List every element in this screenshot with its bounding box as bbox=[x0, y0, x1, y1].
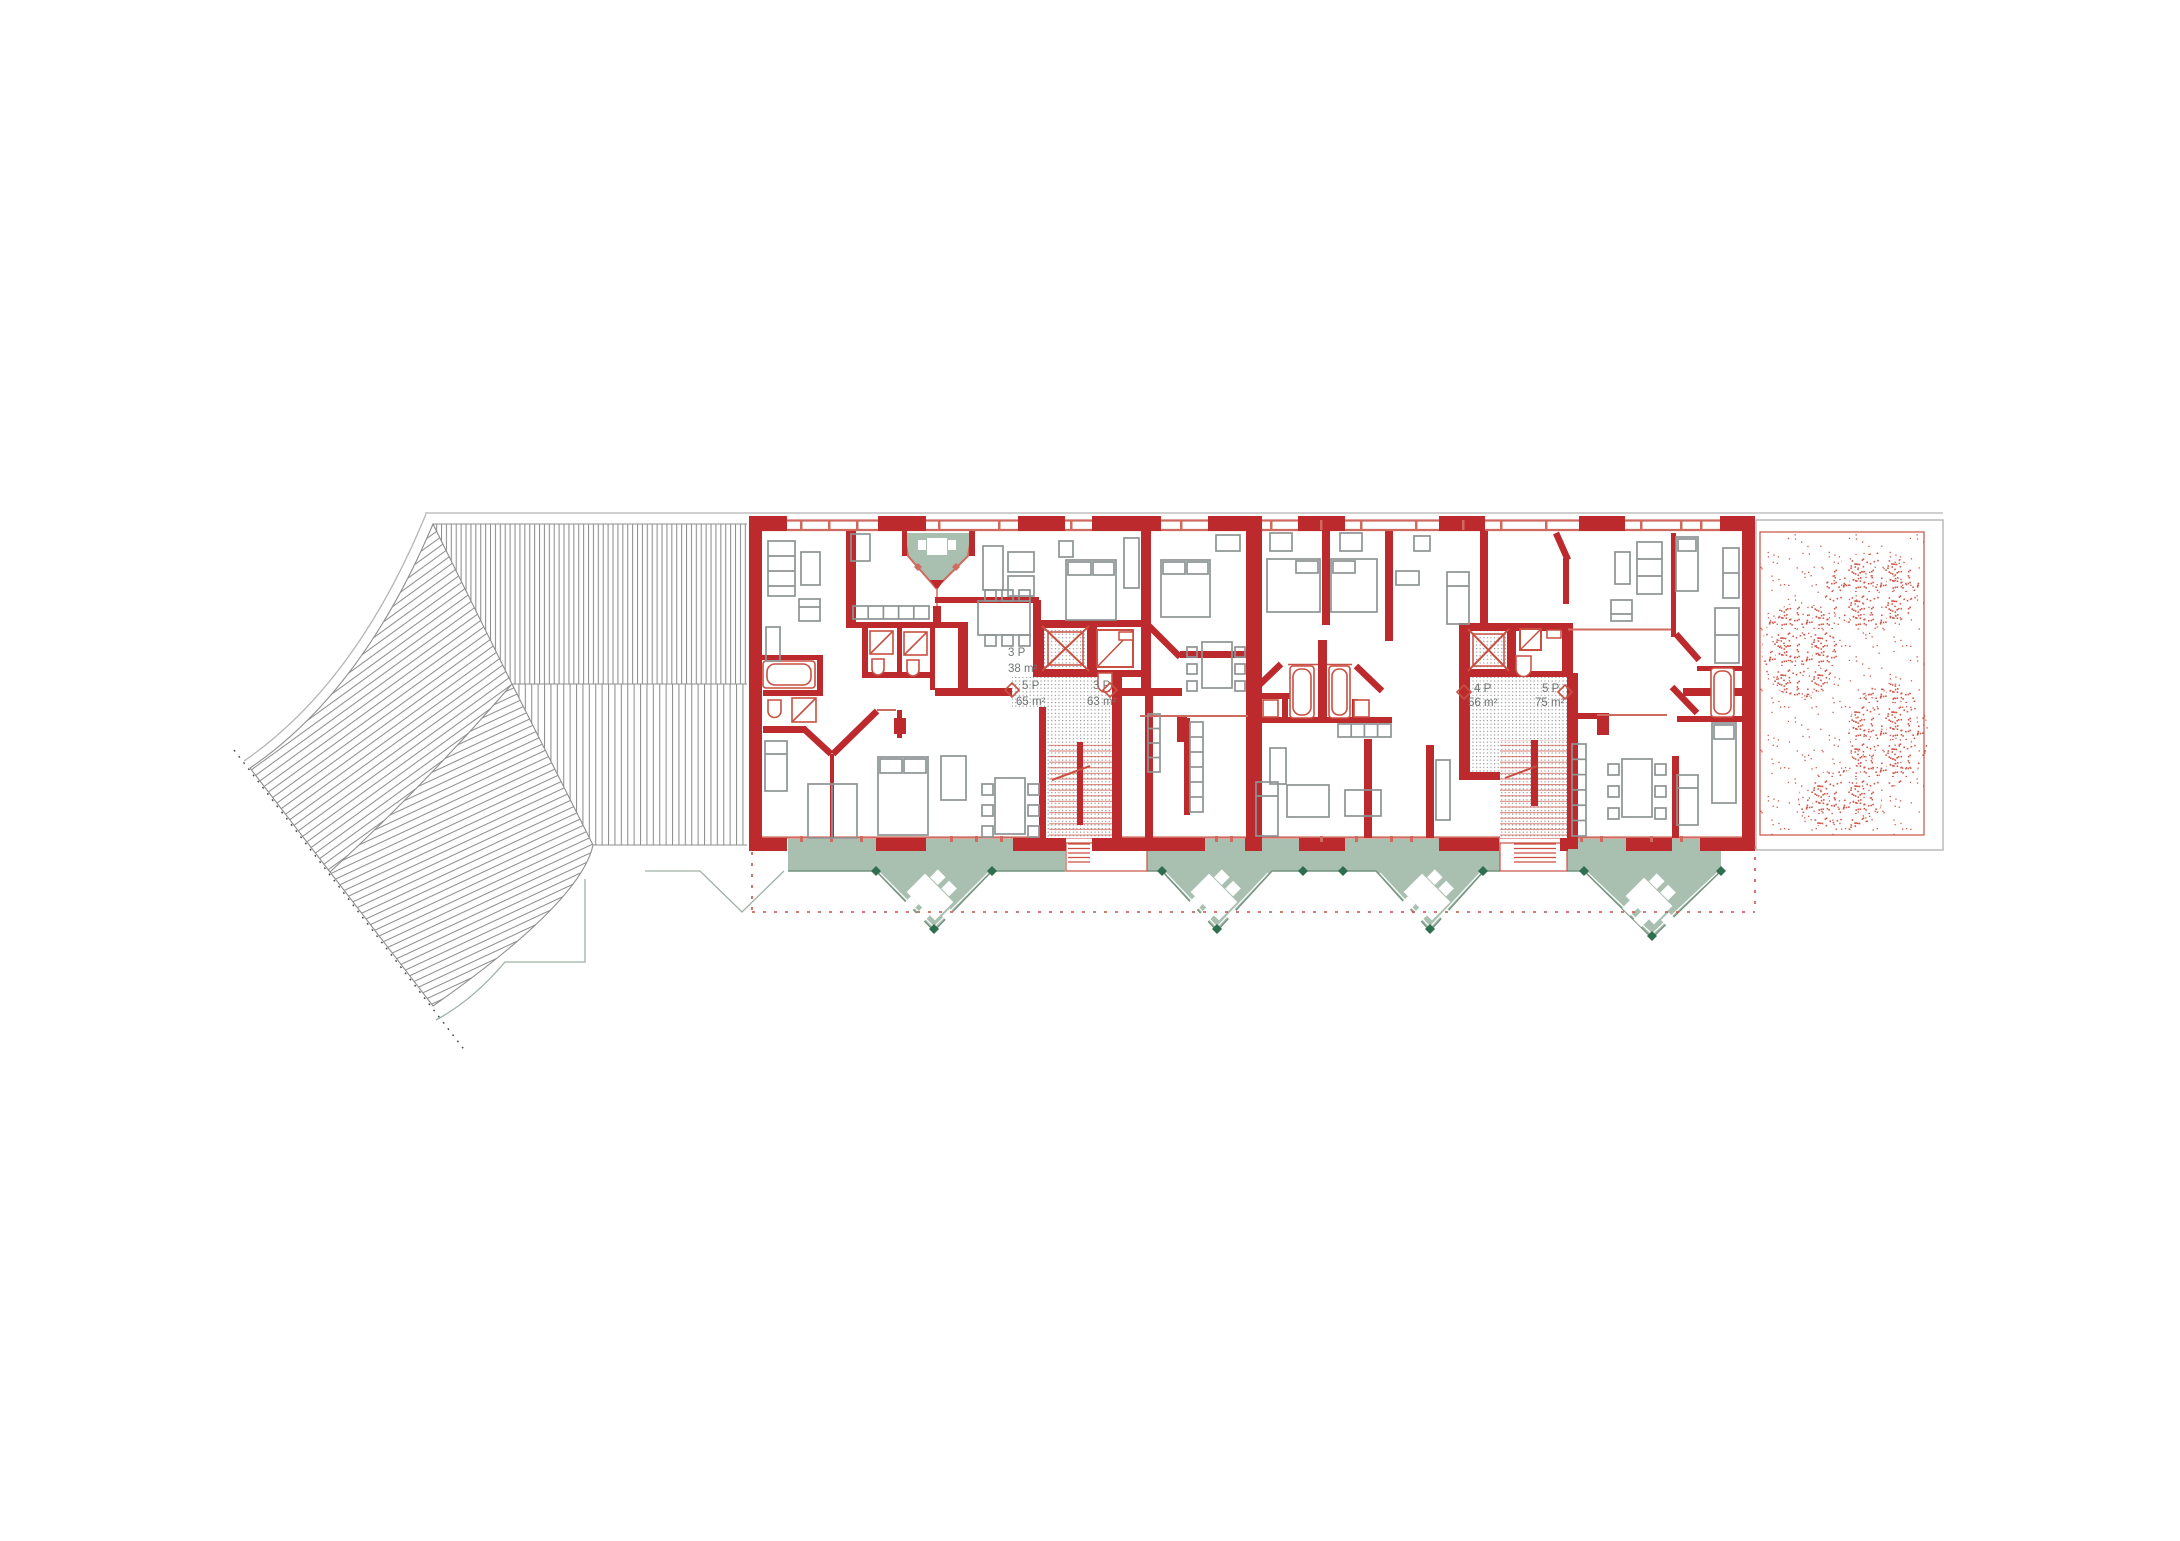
svg-text:75 m²: 75 m² bbox=[1535, 697, 1565, 709]
svg-text:56 m²: 56 m² bbox=[1468, 697, 1498, 709]
svg-text:3 P: 3 P bbox=[1008, 647, 1026, 659]
svg-text:4 P: 4 P bbox=[1474, 683, 1492, 695]
svg-text:65 m²: 65 m² bbox=[1016, 696, 1046, 708]
svg-text:63 m²: 63 m² bbox=[1087, 696, 1117, 708]
svg-text:5 P: 5 P bbox=[1542, 683, 1560, 695]
svg-text:5 P: 5 P bbox=[1022, 680, 1040, 692]
svg-text:38 m²: 38 m² bbox=[1008, 663, 1038, 675]
